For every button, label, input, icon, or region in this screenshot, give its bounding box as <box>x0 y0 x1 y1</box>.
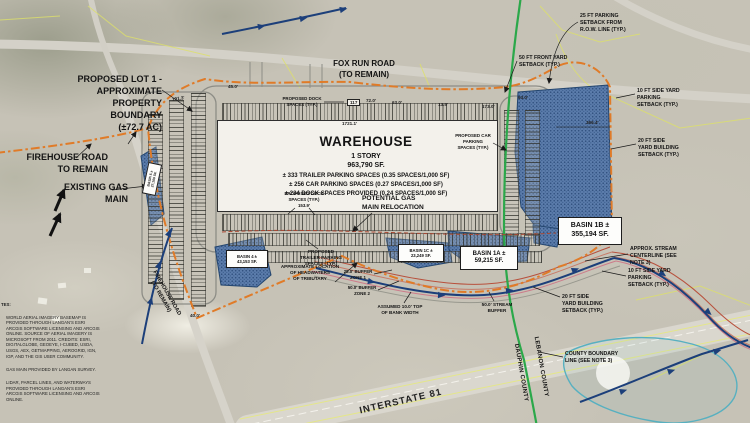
buffer-zone-2-callout: 50.0' BUFFER ZONE 2 <box>346 285 378 297</box>
aerial-structure <box>38 297 48 304</box>
dim-366: 366.4' <box>586 120 599 125</box>
headwaters-callout: APPROXIMATE LOCATION OF HEADWATERS OF TR… <box>276 264 344 282</box>
building-area: 963,790 SF. <box>242 161 490 170</box>
fox-run-road-callout: FOX RUN ROAD (TO REMAIN) <box>324 59 404 80</box>
dim-173: 173.0' <box>482 104 495 109</box>
setback-25-parking-callout: 25 FT PARKING SETBACK FROM R.O.W. LINE (… <box>580 13 648 34</box>
dock-spaces-road-callout: PROPOSED DOCK SPACES (TYP.) <box>281 96 323 108</box>
lebanon-county-label: LEBANON COUNTY <box>530 332 550 402</box>
building-stat-dock: ± 234 DOCK SPACES PROVIDED (0.24 SPACES/… <box>242 191 490 199</box>
dim-117-box: 117 <box>347 99 360 106</box>
county-boundary-callout: COUNTY BOUNDARY LINE (SEE NOTE 3) <box>565 351 635 365</box>
dim-135: 13.5' <box>438 102 448 107</box>
dauphin-county-label: DAUPHIN COUNTY <box>510 338 530 408</box>
top-of-bank-callout: ASSUMED 10.0' TOP OF BANK WIDTH <box>372 304 428 316</box>
firehouse-road-callout: FIREHOUSE ROAD TO REMAIN <box>8 152 108 176</box>
dim-40: 40.0' <box>190 313 200 318</box>
trailer-row-1 <box>228 233 540 246</box>
trailer-col-2 <box>169 100 184 300</box>
interstate-81-road <box>248 322 750 423</box>
note-3: LIDAR, PARCEL LINES, AND WATERWAYS PROVI… <box>6 380 101 402</box>
dock-spaces-south <box>222 214 498 231</box>
dim-1721: 1721.1' <box>342 121 357 126</box>
stream-buffer-callout: 50.0' STREAM BUFFER <box>478 302 516 314</box>
note-1: WORLD AERIAL IMAGERY BASEMAP IS PROVIDED… <box>6 315 101 360</box>
basin-1c-label: BASIN 1C ± 23,249 SF. <box>398 244 444 262</box>
basin-4-label: BASIN 4 ± 43,153 SF. <box>226 250 268 268</box>
building-stat-car: ± 256 CAR PARKING SPACES (0.27 SPACES/1,… <box>242 182 490 190</box>
building-story: 1 STORY <box>242 152 490 161</box>
dim-72: 72.0' <box>366 98 376 103</box>
site-plan: PROPOSED LOT 1 - APPROXIMATE PROPERTY BO… <box>0 0 750 423</box>
setback-20-side-lower-callout: 20 FT SIDE YARD BUILDING SETBACK (TYP.) <box>562 294 618 315</box>
buffer-zone-1-callout: 25.0' BUFFER ZONE 1 <box>342 269 374 281</box>
basin-1a-label: BASIN 1A ± 59,215 SF. <box>460 246 518 270</box>
dim-93: 93.0' <box>518 95 528 100</box>
building-stat-trailer: ± 333 TRAILER PARKING SPACES (0.35 SPACE… <box>242 173 490 181</box>
notes-body: WORLD AERIAL IMAGERY BASEMAP IS PROVIDED… <box>6 309 101 408</box>
car-parking-col-1 <box>504 110 519 236</box>
dim-45: 45.0' <box>228 84 238 89</box>
building-name: WAREHOUSE <box>242 133 490 151</box>
note-2: GAS MAIN PROVIDED BY LANGAN SURVEY. <box>6 367 101 373</box>
notes-header: TES: <box>1 302 11 308</box>
setback-20-side-right-callout: 20 FT SIDE YARD BUILDING SETBACK (TYP.) <box>638 138 694 159</box>
setback-10-side-lower-callout: 10 FT SIDE YARD PARKING SETBACK (TYP.) <box>628 268 686 289</box>
setback-10-side-top-callout: 10 FT SIDE YARD PARKING SETBACK (TYP.) <box>637 88 695 109</box>
existing-gas-callout: EXISTING GAS MAIN <box>43 182 128 206</box>
stream-centerline-callout: APPROX. STREAM CENTERLINE (SEE NOTE 3) <box>630 246 690 267</box>
aerial-structure <box>84 268 91 273</box>
setback-50-front-callout: 50 FT FRONT YARD SETBACK (TYP.) <box>519 55 581 69</box>
interstate-81-label: INTERSTATE 81 <box>345 384 457 421</box>
trailer-col-3 <box>191 93 206 307</box>
car-parking-col-2 <box>525 110 540 236</box>
proposed-lot-callout: PROPOSED LOT 1 - APPROXIMATE PROPERTY BO… <box>52 74 162 133</box>
basin-1b-label: BASIN 1B ± 355,194 SF. <box>558 217 622 245</box>
aerial-structure <box>58 283 66 289</box>
dim-63: 63.0' <box>392 100 402 105</box>
